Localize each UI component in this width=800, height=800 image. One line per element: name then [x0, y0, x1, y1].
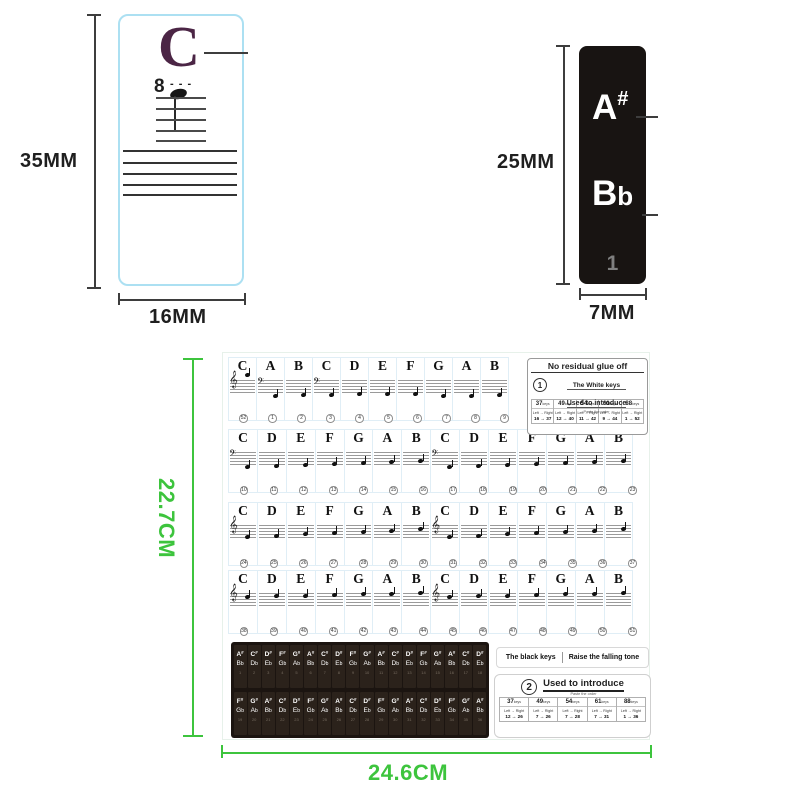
- flat-note-label: Gb: [307, 706, 315, 716]
- sharp-sign: #: [467, 697, 470, 702]
- note-stem: [423, 586, 424, 593]
- dim-label-22-7cm: 22.7CM: [153, 478, 179, 558]
- note-letter: G: [353, 571, 364, 586]
- badge-1: 1: [533, 378, 547, 392]
- sharp-sign: #: [382, 650, 385, 655]
- sticker-number-badge: 20: [539, 486, 548, 495]
- treble-clef-icon: 𝄞: [431, 585, 440, 600]
- note-letter: F: [325, 503, 333, 518]
- sharp-note-label: C#: [321, 649, 328, 659]
- sticker-number-badge: 39: [270, 627, 279, 636]
- sticker-number-badge: 1: [268, 414, 277, 423]
- mini-staff: [489, 519, 517, 545]
- staff-lines: [606, 452, 632, 465]
- staff-line: [123, 194, 237, 196]
- black-sticker-cell: C#Db12: [389, 645, 402, 688]
- black-sticker-cell: A#Bb36: [473, 692, 486, 735]
- note-letter: B: [412, 571, 421, 586]
- note-stem: [278, 459, 279, 466]
- dim-cap: [579, 288, 581, 300]
- note-letter: A: [462, 358, 472, 373]
- sharp-note-label: F#: [420, 649, 427, 659]
- sticker-number-badge: 34: [539, 559, 548, 568]
- sharp-note-label: D#: [434, 696, 441, 706]
- sticker-number-badge: 45: [449, 627, 458, 636]
- note-stem: [277, 389, 278, 396]
- bass-clef-icon: 𝄢: [431, 449, 438, 460]
- note-letter: A: [383, 571, 393, 586]
- mini-staff: [460, 519, 488, 545]
- black-sticker-cell: G#Ab20: [248, 692, 261, 735]
- black-sticker-cell: F#Gb14: [417, 645, 430, 688]
- circle-slot: 46: [468, 627, 498, 636]
- staff-line: [123, 173, 237, 175]
- key-count-header: 88keys: [617, 699, 645, 707]
- staff-lines: [606, 593, 632, 606]
- white-sticker-cell: C𝄢: [312, 357, 341, 421]
- sticker-number: 24: [308, 717, 312, 723]
- white-sticker-cell: E: [286, 570, 316, 634]
- black-sticker-cell: G#Ab25: [318, 692, 331, 735]
- black-sticker-cell: G#Ab30: [389, 692, 402, 735]
- white-sticker-cell: C𝄞: [430, 502, 460, 566]
- white-sticker-cell: B: [604, 429, 634, 493]
- flat-note-label: Bb: [236, 659, 243, 669]
- black-sticker-cell: A#Bb21: [262, 692, 275, 735]
- mini-staff: [547, 446, 575, 472]
- left-right-label: Left → Right: [529, 707, 557, 714]
- note-letter: C: [238, 503, 248, 518]
- white-sticker-cell: B: [401, 502, 431, 566]
- white-sticker-cell: E: [368, 357, 397, 421]
- white-sticker-cell: F: [517, 570, 547, 634]
- white-sticker-cell: D: [459, 502, 489, 566]
- key-count-unit: keys: [631, 700, 638, 704]
- sticker-row: C𝄞A𝄢BC𝄢DEFGAB: [229, 357, 509, 421]
- key-count-header: 61keys: [588, 699, 616, 707]
- circle-slot: 12: [289, 486, 319, 495]
- key-count-header: 54keys: [558, 699, 586, 707]
- staff-lines: [374, 452, 400, 465]
- dim-line-horizontal-right: [580, 294, 646, 296]
- mini-staff: [345, 587, 373, 613]
- staff-lines: [577, 452, 603, 465]
- note-stem: [417, 387, 418, 394]
- white-sticker-cell: B: [604, 502, 634, 566]
- sharp-note-label: C#: [392, 649, 399, 659]
- sticker-number: 23: [294, 717, 298, 723]
- white-sticker-cell: G: [424, 357, 453, 421]
- sharp-sign: #: [397, 697, 400, 702]
- sharp-sign: #: [312, 650, 315, 655]
- note-letter: A: [383, 430, 393, 445]
- mini-staff: [460, 446, 488, 472]
- mini-staff: [576, 446, 604, 472]
- flat-sign: b: [467, 708, 470, 714]
- sharp-note-label: D#: [363, 696, 370, 706]
- black-sticker-cell: F#Gb34: [445, 692, 458, 735]
- circle-slot: 44: [408, 627, 438, 636]
- sharp-note-label: D#: [335, 649, 342, 659]
- sharp-sign: #: [241, 650, 244, 655]
- staff-line: [123, 184, 237, 186]
- mini-staff: [518, 446, 546, 472]
- note-stem: [394, 587, 395, 594]
- white-sticker-cell: D: [459, 429, 489, 493]
- note-stem: [394, 455, 395, 462]
- sticker-number: 7: [324, 670, 326, 676]
- note-stem: [365, 587, 366, 594]
- note-stem: [625, 454, 626, 461]
- sharp-sign: #: [298, 697, 301, 702]
- sticker-number-badge: 48: [539, 627, 548, 636]
- circle-slot: 22: [588, 486, 618, 495]
- note-stem: [481, 459, 482, 466]
- info-mid: 1 The White keys Used to introduce Paste…: [531, 374, 644, 398]
- white-sticker-cell: G: [546, 502, 576, 566]
- sticker-number: 29: [379, 717, 383, 723]
- staff-lines: [288, 593, 314, 606]
- dim-label-16mm: 16MM: [149, 306, 207, 329]
- white-sticker-cell: F: [315, 429, 345, 493]
- sticker-row: C𝄞DEFGABC𝄞DEFGAB: [229, 502, 633, 566]
- note-stem: [423, 454, 424, 461]
- flat-sign: b: [382, 661, 385, 667]
- sticker-number-badge: 50: [598, 627, 607, 636]
- sticker-number: 16: [449, 670, 453, 676]
- circle-slot: 33: [498, 559, 528, 568]
- circle-slot: 43: [378, 627, 408, 636]
- circle-slot: 21: [558, 486, 588, 495]
- sharp-sign: #: [382, 697, 385, 702]
- note-stem: [538, 526, 539, 533]
- circle-slot: 8: [461, 414, 490, 423]
- sticker-number: 5: [295, 670, 297, 676]
- left-right-label: Left → Right: [617, 707, 645, 714]
- flat-sign: b: [297, 708, 300, 714]
- circle-slot: 4: [345, 414, 374, 423]
- staff-lines: [288, 525, 314, 538]
- treble-clef-icon: 𝄞: [431, 517, 440, 532]
- sharp-sign: #: [311, 697, 314, 702]
- flat-note-label: Eb: [265, 659, 272, 669]
- staff-lines: [548, 452, 574, 465]
- circle-slot: 1: [258, 414, 287, 423]
- sticker-number: 8: [338, 670, 340, 676]
- white-sticker-cell: A: [575, 570, 605, 634]
- mini-staff: [605, 587, 633, 613]
- staff-lines: [374, 593, 400, 606]
- info-title: No residual glue off: [531, 361, 644, 373]
- sticker-number: 20: [252, 717, 256, 723]
- black-sticker-cell: D#Eb23: [290, 692, 303, 735]
- white-sticker-cell: E: [286, 429, 316, 493]
- sharp-note-label: F#: [307, 696, 314, 706]
- staff-lines: [577, 593, 603, 606]
- flat-sign: b: [396, 708, 399, 714]
- sharp-sign: #: [368, 697, 371, 702]
- circle-slot: 7: [432, 414, 461, 423]
- sticker-number: 28: [365, 717, 369, 723]
- dim-line-sheet-height: [192, 359, 194, 737]
- black-sticker-cell: A#Bb11: [375, 645, 388, 688]
- mini-staff: [316, 587, 344, 613]
- note-stem: [445, 389, 446, 396]
- flat-note-label: Bb: [448, 659, 455, 669]
- white-sticker-cell: A: [372, 429, 402, 493]
- sticker-range: 1 → 36: [617, 714, 645, 719]
- black-sticker-cell: A#Bb1: [234, 645, 247, 688]
- sticker-number: 19: [238, 717, 242, 723]
- sharp-note-label: D#: [406, 649, 413, 659]
- ledger-line: [156, 130, 206, 132]
- mini-staff: [547, 519, 575, 545]
- circle-slot: 27: [319, 559, 349, 568]
- note-stem: [625, 522, 626, 529]
- dim-cap: [183, 358, 203, 360]
- sharp-sign: #: [269, 697, 272, 702]
- note-letter: F: [406, 358, 414, 373]
- flat-note-label: Gb: [448, 706, 456, 716]
- sharp-sign: #: [452, 697, 455, 702]
- mini-staff: [345, 446, 373, 472]
- staff-lines: [259, 525, 285, 538]
- ledger-line: [156, 140, 206, 142]
- note-stem: [423, 522, 424, 529]
- note-stem: [501, 388, 502, 395]
- staff-lines: [346, 525, 372, 538]
- staff-lines: [490, 525, 516, 538]
- staff-lines: [286, 380, 311, 393]
- mini-staff: 𝄞: [229, 519, 257, 545]
- note-stem: [307, 458, 308, 465]
- note-letter-c: C: [158, 18, 200, 76]
- note-stem: [596, 524, 597, 531]
- sharp-note-label: G#: [293, 649, 301, 659]
- sharp-note-label: C#: [349, 696, 356, 706]
- staff-lines: [519, 525, 545, 538]
- circle-slot: 6: [403, 414, 432, 423]
- circle-slot: 18: [468, 486, 498, 495]
- circle-slot: 37: [618, 559, 648, 568]
- sticker-range: 16 → 37: [532, 416, 553, 421]
- sticker-number-badge: 12: [299, 486, 308, 495]
- sticker-number-badge: 32: [479, 559, 488, 568]
- dim-line-vertical-left: [94, 15, 96, 288]
- sticker-number-badge: 38: [240, 627, 249, 636]
- sharp-note-label: D#: [476, 649, 483, 659]
- sharp-note-label: G#: [462, 696, 470, 706]
- sticker-number-badge: 47: [509, 627, 518, 636]
- black-keys-label: The black keys: [506, 654, 556, 661]
- flat-note-label: Ab: [392, 706, 399, 716]
- black-sticker-cell: D#Eb8: [332, 645, 345, 688]
- flat-sign: b: [241, 708, 244, 714]
- flat-note-label: Bb: [378, 659, 385, 669]
- flat-sign: b: [325, 708, 328, 714]
- staff-lines: [519, 452, 545, 465]
- black-sticker-cell: C#Db27: [346, 692, 359, 735]
- sticker-number: 31: [407, 717, 411, 723]
- note-letter: C: [440, 430, 450, 445]
- note-letter: D: [267, 430, 277, 445]
- flat-sign: b: [340, 661, 343, 667]
- flat-sign: b: [368, 661, 371, 667]
- staff-lines: [346, 452, 372, 465]
- flat-note-label: Db: [279, 706, 286, 716]
- note-stem: [278, 589, 279, 596]
- sharp-sign: #: [481, 650, 484, 655]
- flat-note-label: Ab: [321, 706, 328, 716]
- mini-staff: [258, 446, 286, 472]
- flat-note-label: Eb: [363, 706, 370, 716]
- flat-note-label: Db: [321, 659, 328, 669]
- note-letter: A: [585, 571, 595, 586]
- product-spec-image: 35MM C 8 - - - 16MM 25MM A# Bb 1: [0, 0, 800, 800]
- sticker-number-badge: 36: [598, 559, 607, 568]
- mini-staff: [402, 587, 430, 613]
- white-sticker-cell: D: [257, 570, 287, 634]
- sticker-number-badge: 15: [389, 486, 398, 495]
- staff-lines: [606, 525, 632, 538]
- note-letter: E: [498, 430, 507, 445]
- circle-slot: 17: [438, 486, 468, 495]
- white-sticker-cell: G: [546, 570, 576, 634]
- circle-slot: 38: [229, 627, 259, 636]
- flat-note-label: Bb: [476, 706, 483, 716]
- circle-slot: 29: [378, 559, 408, 568]
- note-letter: E: [498, 503, 507, 518]
- dim-line-vertical-right: [563, 46, 565, 284]
- sticker-range: 1 → 52: [622, 416, 643, 421]
- sharp-sign: #: [283, 650, 286, 655]
- flat-note-label: Db: [349, 706, 356, 716]
- note-letter: B: [294, 358, 303, 373]
- note-letter: G: [555, 571, 566, 586]
- note-letter: D: [469, 430, 479, 445]
- black-sticker-cell: C#Db22: [276, 692, 289, 735]
- sticker-range: 12 → 40: [554, 416, 575, 421]
- sticker-number: 11: [379, 670, 383, 676]
- sharp-note-label: G#: [321, 696, 329, 706]
- white-sticker-cell: E: [488, 429, 518, 493]
- octave-8-mark: 8: [154, 76, 165, 98]
- info-line2: Used to introduce: [567, 400, 627, 408]
- white-sticker-cell: C𝄞: [228, 357, 257, 421]
- sharp-note-label: A#: [307, 649, 314, 659]
- sharp-note-label: A#: [378, 649, 385, 659]
- note-stem: [481, 529, 482, 536]
- key-count-column: 37keysLeft → Right12 → 26: [500, 698, 528, 721]
- mini-staff: 𝄞: [431, 519, 459, 545]
- flat-sign: b: [438, 708, 441, 714]
- sticker-number-row: 52123456789: [229, 414, 519, 423]
- note-stem: [336, 588, 337, 595]
- dim-cap: [244, 293, 246, 305]
- note-stem: [174, 96, 176, 132]
- sticker-number-badge: 2: [297, 414, 306, 423]
- note-stem: [365, 525, 366, 532]
- sticker-number-row: 2425262728293031323334353637: [229, 559, 647, 568]
- note-stem: [394, 524, 395, 531]
- staff-lines: [519, 593, 545, 606]
- flat-sign: b: [326, 661, 329, 667]
- dim-cap: [118, 293, 120, 305]
- note-letter: G: [353, 430, 364, 445]
- key-count-column: 54keysLeft → Right7 → 28: [557, 698, 586, 721]
- flat-note-label: Db: [462, 659, 469, 669]
- staff-lines: [461, 525, 487, 538]
- sharp-note-label: F#: [279, 649, 286, 659]
- note-stem: [336, 457, 337, 464]
- sticker-number: 35: [464, 717, 468, 723]
- ledger-line: [156, 97, 206, 99]
- sticker-number-badge: 8: [471, 414, 480, 423]
- sticker-index: 1: [579, 252, 646, 276]
- flat-note-label: Gb: [278, 659, 286, 669]
- mini-staff: [518, 519, 546, 545]
- circle-slot: 40: [289, 627, 319, 636]
- sticker-number-badge: 37: [628, 559, 637, 568]
- note-stem: [307, 527, 308, 534]
- flat-sign: b: [269, 661, 272, 667]
- sharp-note-label: F#: [237, 696, 244, 706]
- sticker-number-badge: 18: [479, 486, 488, 495]
- note-letter: C: [440, 503, 450, 518]
- white-sticker-cell: B: [604, 570, 634, 634]
- sticker-number-badge: 35: [568, 559, 577, 568]
- note-letter: C: [238, 358, 248, 373]
- note-stem: [249, 368, 250, 375]
- flat-note-label: Eb: [335, 659, 342, 669]
- white-sticker-cell: G: [344, 502, 374, 566]
- circle-slot: 5: [374, 414, 403, 423]
- flat-sign: b: [241, 661, 244, 667]
- staff-lines: [398, 380, 423, 393]
- mini-staff: [373, 519, 401, 545]
- sticker-number-badge: 19: [509, 486, 518, 495]
- staff-lines: [346, 593, 372, 606]
- staff-lines: [317, 593, 343, 606]
- flat-sign: b: [481, 661, 484, 667]
- flat-sign: b: [297, 661, 300, 667]
- sticker-number-badge: 21: [568, 486, 577, 495]
- dim-line-horizontal-left: [119, 299, 245, 301]
- staff-lines: [548, 525, 574, 538]
- sticker-range: 7 → 31: [588, 714, 616, 719]
- white-sticker-cell: F: [315, 570, 345, 634]
- flat-sign: b: [410, 708, 413, 714]
- treble-clef-icon: 𝄞: [229, 517, 238, 532]
- mini-staff: [576, 519, 604, 545]
- black-sticker-cell: G#Ab35: [459, 692, 472, 735]
- sharp-sign: #: [340, 697, 343, 702]
- note-letter: F: [528, 503, 536, 518]
- sharp-note-label: C#: [251, 649, 258, 659]
- flat-note-letter: B: [592, 174, 617, 213]
- sticker-number: 33: [435, 717, 439, 723]
- white-sticker-cell: A: [372, 570, 402, 634]
- mini-staff: [402, 519, 430, 545]
- key-count-column: 88keysLeft → Right1 → 36: [616, 698, 645, 721]
- note-letter: F: [325, 571, 333, 586]
- sharp-note-label: C#: [462, 649, 469, 659]
- sticker-number-badge: 14: [359, 486, 368, 495]
- note-stem: [307, 589, 308, 596]
- sticker-number-badge: 52: [239, 414, 248, 423]
- note-stem: [305, 388, 306, 395]
- sticker-number-badge: 10: [240, 486, 249, 495]
